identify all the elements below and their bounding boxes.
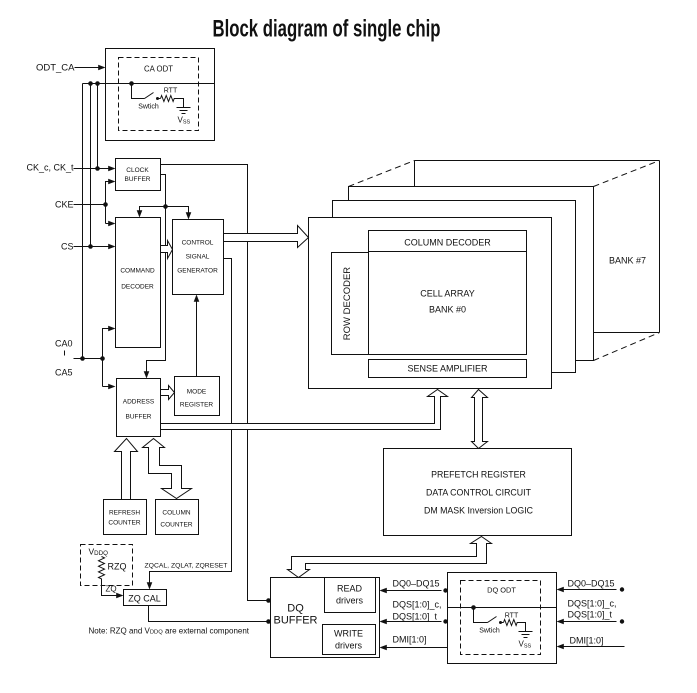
svg-text:DQ: DQ — [287, 603, 304, 615]
svg-text:ZQCAL, ZQLAT, ZQRESET: ZQCAL, ZQLAT, ZQRESET — [145, 563, 228, 570]
svg-text:DECODER: DECODER — [121, 284, 154, 291]
svg-text:BUFFER: BUFFER — [126, 414, 152, 421]
svg-text:DQS[1:0]_c,: DQS[1:0]_c, — [568, 599, 617, 609]
svg-text:COUNTER: COUNTER — [108, 520, 140, 527]
svg-text:WRITE: WRITE — [334, 629, 363, 639]
svg-text:DMI[1:0]: DMI[1:0] — [570, 636, 604, 646]
svg-text:CA5: CA5 — [55, 368, 73, 378]
svg-text:COMMAND: COMMAND — [120, 268, 155, 275]
svg-text:DM MASK Inversion LOGIC: DM MASK Inversion LOGIC — [424, 506, 534, 516]
svg-text:SIGNAL: SIGNAL — [186, 254, 210, 261]
svg-text:Block diagram of single chip: Block diagram of single chip — [213, 16, 441, 43]
svg-text:ZQ CAL: ZQ CAL — [128, 594, 161, 604]
svg-text:BUFFER: BUFFER — [274, 615, 318, 627]
svg-text:ADDRESS: ADDRESS — [123, 399, 155, 406]
svg-text:CELL ARRAY: CELL ARRAY — [420, 289, 475, 299]
svg-text:DQS[1:0]_t: DQS[1:0]_t — [568, 610, 613, 620]
svg-text:CS: CS — [61, 242, 74, 252]
svg-text:BANK #7: BANK #7 — [609, 256, 646, 266]
svg-text:BUFFER: BUFFER — [125, 176, 151, 183]
svg-text:REGISTER: REGISTER — [180, 402, 214, 409]
svg-text:DQ ODT: DQ ODT — [487, 586, 516, 595]
svg-text:DMI[1:0]: DMI[1:0] — [393, 635, 427, 645]
svg-text:COLUMN: COLUMN — [162, 510, 190, 517]
svg-text:DQS[1:0]_t: DQS[1:0]_t — [393, 612, 438, 622]
svg-text:Note: RZQ and VDDQ are externa: Note: RZQ and VDDQ are external componen… — [89, 627, 250, 636]
svg-text:READ: READ — [337, 584, 363, 594]
svg-text:DQ0–DQ15: DQ0–DQ15 — [568, 579, 615, 589]
svg-text:Swtich: Swtich — [138, 104, 159, 111]
svg-text:ZQ: ZQ — [106, 585, 117, 594]
svg-text:BANK #0: BANK #0 — [429, 305, 466, 315]
svg-text:CKE: CKE — [55, 200, 74, 210]
svg-text:CLOCK: CLOCK — [126, 167, 149, 174]
svg-text:DATA CONTROL CIRCUIT: DATA CONTROL CIRCUIT — [426, 488, 532, 498]
svg-text:COUNTER: COUNTER — [160, 522, 192, 529]
svg-text:drivers: drivers — [335, 641, 363, 651]
svg-text:GENERATOR: GENERATOR — [177, 268, 218, 275]
svg-text:Swtich: Swtich — [479, 628, 500, 635]
svg-text:ODT_CA: ODT_CA — [36, 63, 75, 74]
svg-text:DQS[1:0]_c,: DQS[1:0]_c, — [393, 600, 442, 610]
svg-text:ROW DECODER: ROW DECODER — [342, 267, 353, 341]
svg-text:REFRESH: REFRESH — [109, 510, 140, 517]
svg-text:MODE: MODE — [187, 389, 207, 396]
svg-text:RTT: RTT — [505, 613, 519, 620]
svg-text:CK_c, CK_t: CK_c, CK_t — [26, 163, 74, 173]
svg-text:DQ0–DQ15: DQ0–DQ15 — [393, 579, 440, 589]
svg-text:SENSE AMPLIFIER: SENSE AMPLIFIER — [407, 364, 488, 374]
svg-text:COLUMN DECODER: COLUMN DECODER — [404, 238, 491, 248]
svg-text:CA0: CA0 — [55, 339, 73, 349]
svg-text:RTT: RTT — [164, 88, 178, 95]
svg-text:RZQ: RZQ — [108, 562, 127, 572]
svg-text:drivers: drivers — [336, 596, 364, 606]
svg-text:PREFETCH REGISTER: PREFETCH REGISTER — [431, 470, 526, 480]
svg-text:CA ODT: CA ODT — [144, 65, 173, 74]
svg-text:CONTROL: CONTROL — [182, 240, 214, 247]
